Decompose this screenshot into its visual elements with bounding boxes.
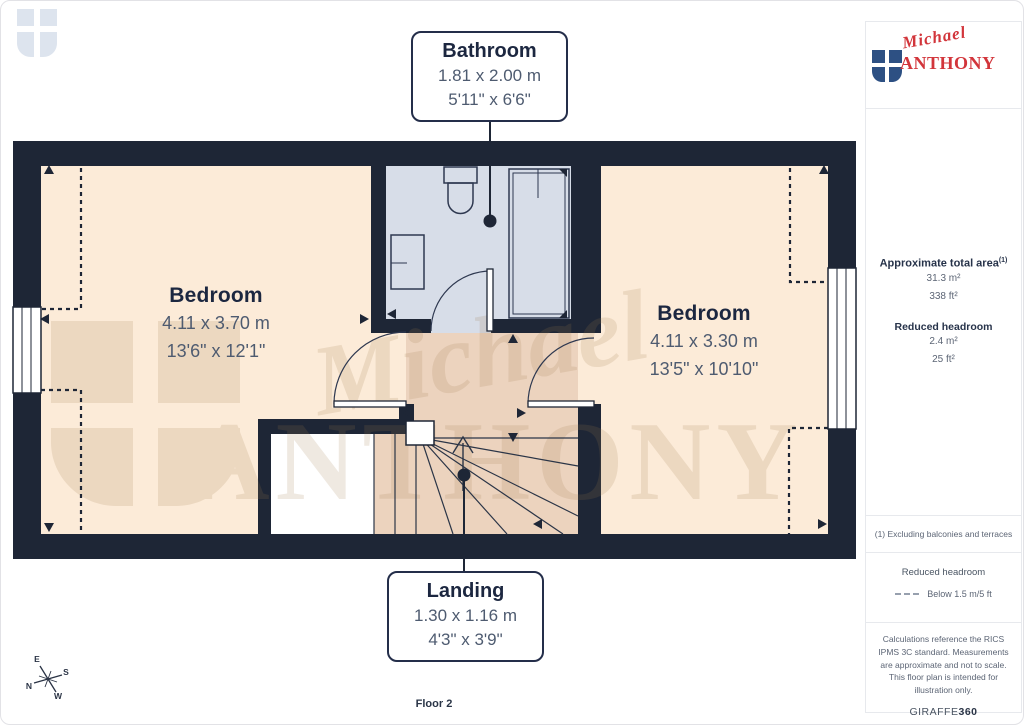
room-dim-metric: 4.11 x 3.30 m [599,329,809,354]
reduced-headroom-imperial: 25 ft² [866,351,1021,370]
footnote-panel: (1) Excluding balconies and terraces [865,515,1022,553]
brand-script: Michael [901,23,968,54]
room-name: Bathroom [423,40,556,63]
brand-shield-icon [872,50,902,82]
bedroom-right-label: Bedroom 4.11 x 3.30 m 13'5" x 10'10" [599,302,809,382]
total-area-heading: Approximate total area(1) [866,257,1021,270]
legend-title: Reduced headroom [866,567,1021,578]
window-right [828,268,856,429]
room-dim-metric: 1.30 x 1.16 m [399,605,532,627]
total-area-footnote-marker: (1) [999,257,1008,264]
landing-callout: Landing 1.30 x 1.16 m 4'3" x 3'9" [387,571,544,662]
compass-label-w: W [54,691,63,701]
floorplan-page: Michael ANTHONY [0,0,1024,725]
landing-pointer-dot [458,469,471,482]
bathroom-callout: Bathroom 1.81 x 2.00 m 5'11" x 6'6" [411,31,568,122]
compass-icon [34,666,62,692]
room-dim-imperial: 13'6" x 12'1" [111,339,321,364]
room-dim-metric: 1.81 x 2.00 m [423,65,556,87]
room-name: Bedroom [599,302,809,326]
bathroom-pointer-dot [484,215,497,228]
total-area-title: Approximate total area [880,258,999,270]
giraffe360-suffix: 360 [958,706,977,718]
reduced-headroom-metric: 2.4 m² [866,333,1021,352]
legend-dash-icon [895,593,919,595]
brand-logo: Michael ANTHONY [865,21,1022,109]
room-dim-imperial: 4'3" x 3'9" [399,629,532,651]
room-name: Bedroom [111,284,321,308]
compass-label-n: N [26,681,32,691]
room-name: Landing [399,580,532,603]
footnote-text: (1) Excluding balconies and terraces [875,529,1013,539]
giraffe360-name: GIRAFFE [909,706,958,718]
floor-label: Floor 2 [384,698,484,710]
window-left [13,307,41,393]
legend-panel: Reduced headroom Below 1.5 m/5 ft [865,552,1022,623]
total-area-imperial: 338 ft² [866,288,1021,307]
total-area-metric: 31.3 m² [866,270,1021,289]
brand-wordmark: ANTHONY [900,53,996,74]
page-shield-icon [17,9,57,57]
bedroom-left-label: Bedroom 4.11 x 3.70 m 13'6" x 12'1" [111,284,321,364]
legend-label: Below 1.5 m/5 ft [927,589,992,599]
compass-label-e: E [34,654,40,664]
room-dim-imperial: 13'5" x 10'10" [599,357,809,382]
room-dim-imperial: 5'11" x 6'6" [423,89,556,111]
disclaimer-panel: Calculations reference the RICS IPMS 3C … [865,622,1022,713]
area-summary-panel: Approximate total area(1) 31.3 m² 338 ft… [865,108,1022,516]
compass-label-s: S [63,667,69,677]
giraffe360-logo: GIRAFFE360 [877,706,1010,718]
reduced-headroom-heading: Reduced headroom [866,321,1021,333]
watermark-word: ANTHONY [189,400,803,524]
stair-newel-box [406,421,434,445]
disclaimer-text: Calculations reference the RICS IPMS 3C … [877,633,1010,697]
room-dim-metric: 4.11 x 3.70 m [111,311,321,336]
